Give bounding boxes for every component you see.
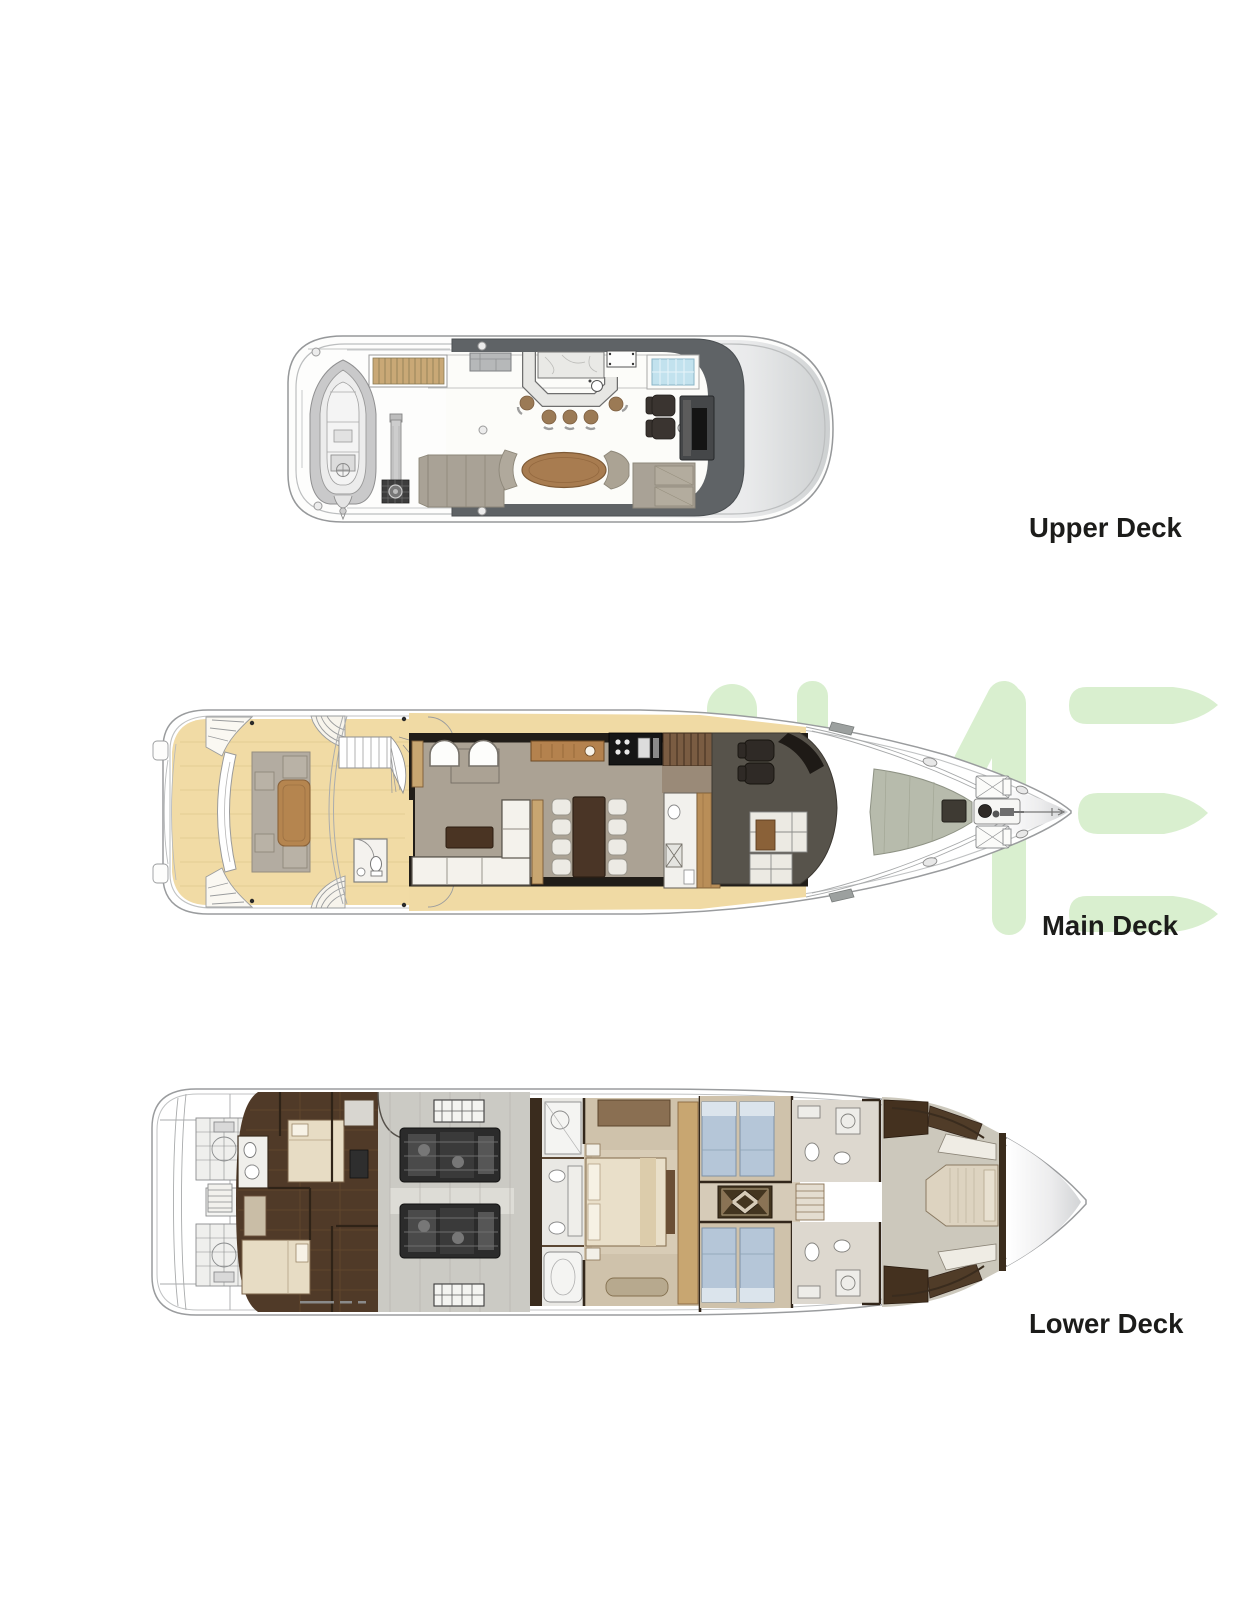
svg-text:Upper Deck: Upper Deck <box>1029 512 1183 543</box>
svg-text:Lower Deck: Lower Deck <box>1029 1308 1184 1339</box>
svg-text:Main Deck: Main Deck <box>1042 910 1179 941</box>
